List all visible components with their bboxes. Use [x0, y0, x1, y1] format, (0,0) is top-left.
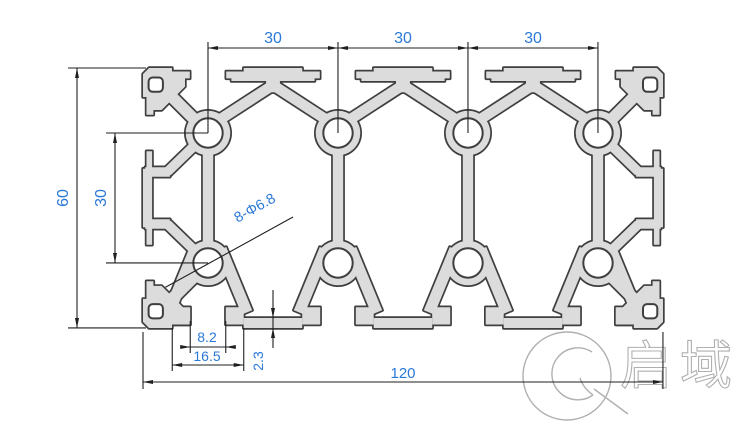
dim-label-pitch-1: 30	[264, 30, 282, 47]
dim-label-slot-inner: 16.5	[193, 348, 220, 364]
dim-label-slot-opening: 8.2	[197, 329, 217, 345]
logo-circle-icon	[523, 332, 611, 420]
dim-label-height: 60	[55, 189, 72, 207]
bolt-hole	[583, 248, 612, 277]
dim-label-holes: 8-Φ6.8	[232, 191, 279, 227]
corner-channel-hole	[643, 304, 657, 318]
dim-label-pitch-2: 30	[394, 30, 412, 47]
profile-drawing: 启域30303060308-Φ6.88.216.52.3120	[0, 0, 756, 428]
corner-channel-hole	[643, 78, 657, 92]
watermark-logo: 启域	[523, 332, 740, 420]
logo-q-hook-icon	[580, 378, 593, 395]
dim-label-wall: 2.3	[250, 351, 266, 371]
dim-label-row-pitch: 30	[93, 189, 110, 207]
profile-outline	[143, 68, 663, 328]
corner-channel-hole	[149, 78, 163, 92]
logo-q-swirl-icon	[552, 348, 593, 400]
watermark-text: 启域	[620, 337, 740, 397]
bolt-hole	[323, 248, 352, 277]
drawing-canvas: 启域30303060308-Φ6.88.216.52.3120	[0, 0, 756, 428]
bolt-hole	[453, 248, 482, 277]
dim-label-width: 120	[390, 365, 415, 382]
profile-fill	[143, 68, 663, 328]
corner-channel-hole	[149, 304, 163, 318]
dim-label-pitch-3: 30	[524, 30, 542, 47]
